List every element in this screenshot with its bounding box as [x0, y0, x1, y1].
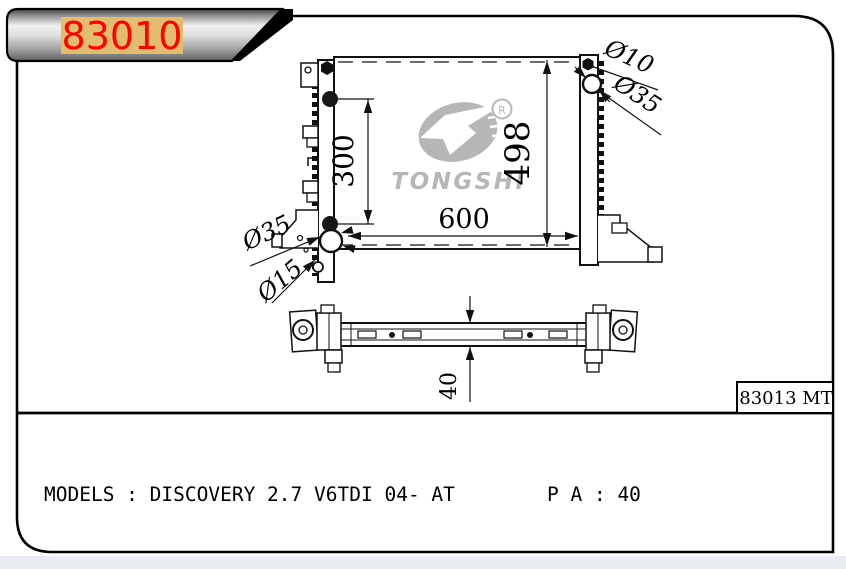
right-lower-bracket — [598, 215, 653, 262]
dim-height: 498 — [498, 121, 538, 186]
part-number-banner: 83010 — [7, 9, 293, 61]
spec-line-models: MODELS : DISCOVERY 2.7 V6TDI 04- AT — [44, 481, 455, 509]
drain-port — [313, 262, 323, 272]
upper-port — [322, 91, 338, 107]
bottom-inlet-port — [320, 230, 342, 252]
radiator-bottom-view — [290, 305, 638, 372]
dim-port-spacing: 300 — [327, 134, 360, 187]
catalog-page: 83013 MT 83010 — [0, 0, 846, 569]
dim-width: 600 — [438, 204, 490, 235]
dia-bottom-port: Ø35 — [237, 209, 295, 256]
right-mount-bracket — [585, 305, 637, 372]
spec-block-left: MODELS : DISCOVERY 2.7 V6TDI 04- AT CORE… — [44, 424, 455, 569]
left-mount-bracket — [290, 305, 342, 372]
spec-block-right: P A : 40 DPI : OEM : LR021778 NISSENS: 6… — [547, 424, 723, 569]
ref-code: 83013 MT — [739, 388, 832, 409]
dim-bar-thickness: 40 — [437, 372, 462, 400]
spec-line-pa: P A : 40 — [547, 481, 723, 509]
dia-top-port: Ø35 — [608, 68, 666, 119]
bottom-scroll-strip — [0, 556, 846, 569]
part-number: 83010 — [62, 14, 183, 58]
registered-letter: R — [498, 104, 506, 117]
